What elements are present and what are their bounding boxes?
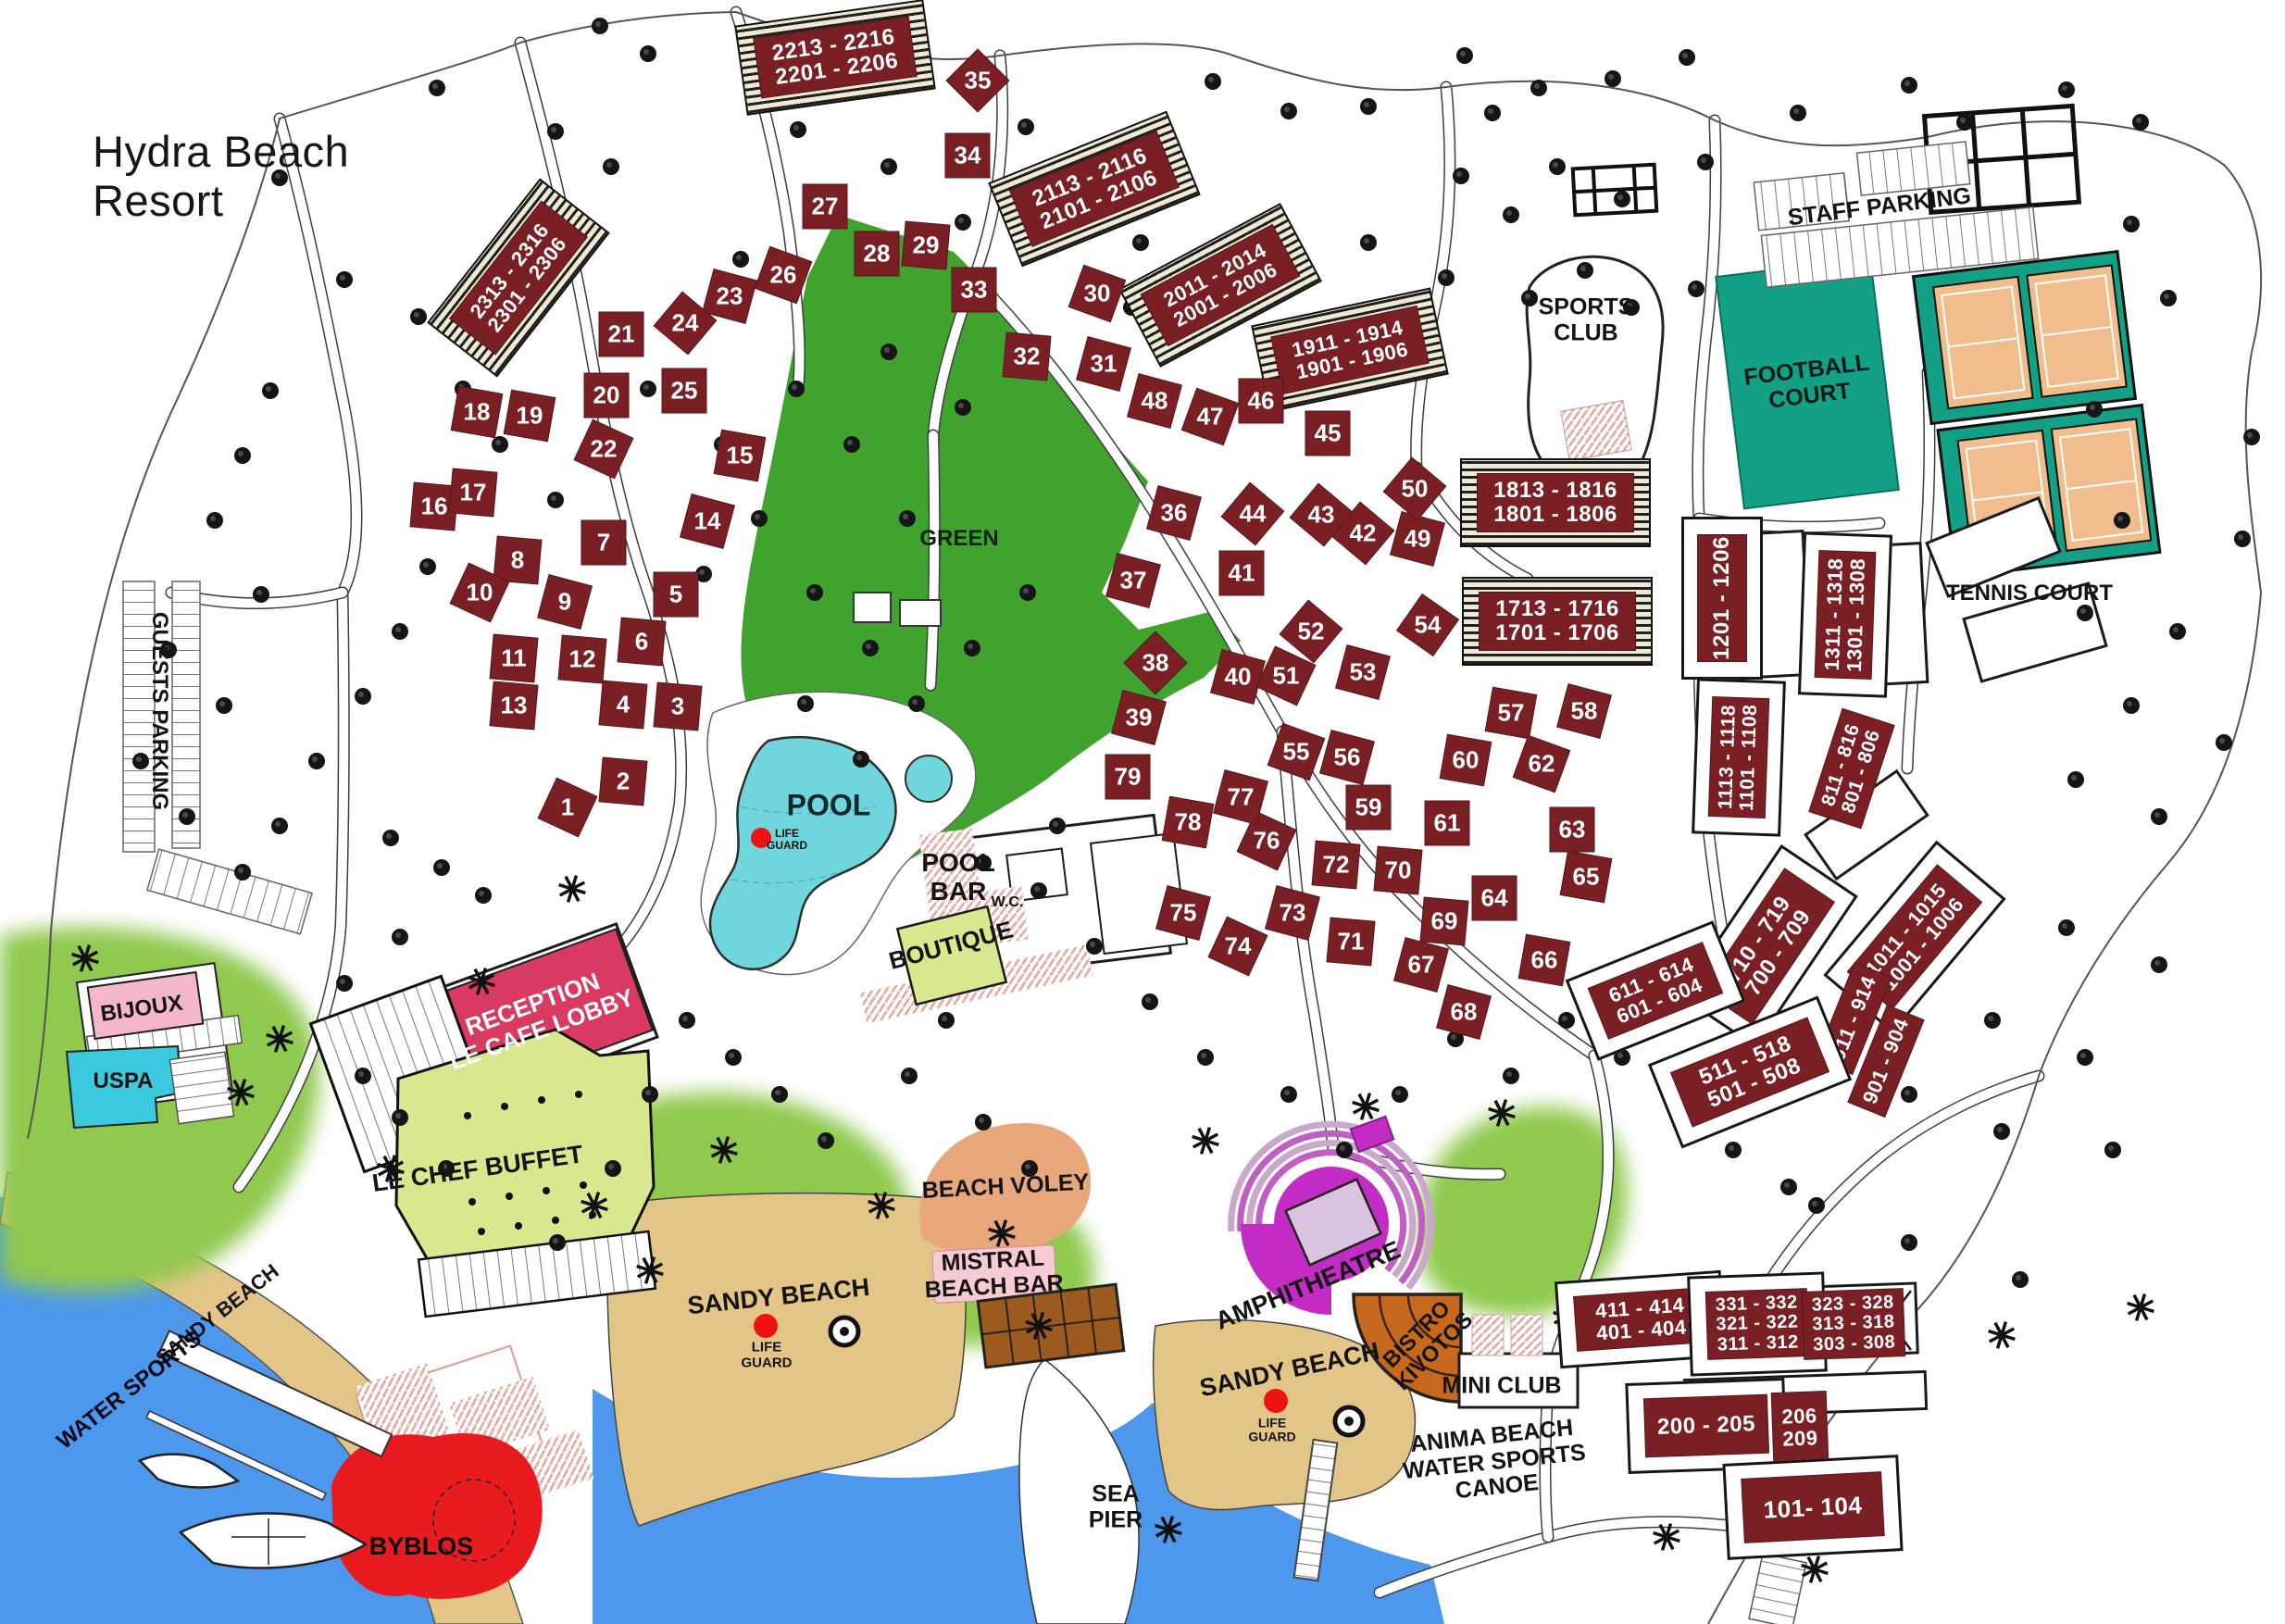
byblos-building xyxy=(331,1433,543,1599)
map-graphics xyxy=(0,0,2285,1624)
mini-club-building xyxy=(1459,1354,1578,1407)
guests-parking-lot xyxy=(123,581,312,934)
palm-tree-icon xyxy=(1989,1322,2016,1349)
structures-layer xyxy=(67,106,2160,1624)
football-court-shape xyxy=(1716,258,1898,509)
resort-map: 2213 - 2216 2201 - 22062313 - 2316 2301 … xyxy=(0,0,2285,1624)
palm-tree-icon xyxy=(559,876,586,903)
lifeguard-dot-pool xyxy=(751,828,771,848)
lifeguard-dot-right-beach xyxy=(1264,1389,1288,1413)
palm-tree-icon xyxy=(1353,1093,1380,1120)
resort-title: Hydra Beach Resort xyxy=(93,128,349,225)
palm-tree-icon xyxy=(2128,1294,2154,1321)
palm-tree-icon xyxy=(1192,1128,1219,1155)
lifeguard-dot-center-beach xyxy=(754,1314,778,1338)
kids-pool xyxy=(905,756,952,802)
